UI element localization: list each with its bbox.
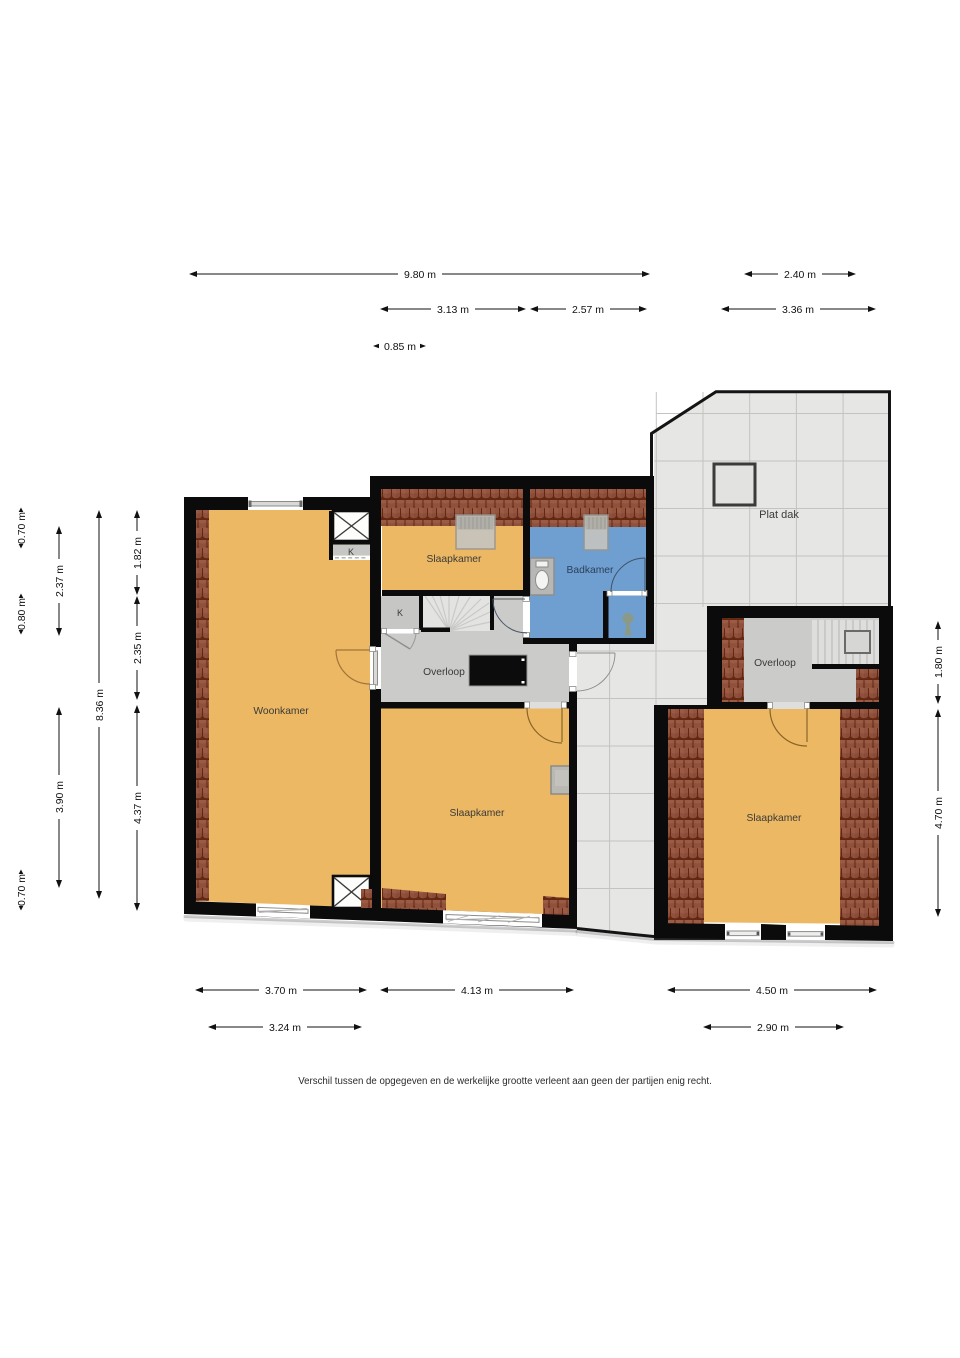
svg-text:Overloop: Overloop xyxy=(754,658,796,669)
svg-text:Woonkamer: Woonkamer xyxy=(253,706,309,717)
svg-text:3.70 m: 3.70 m xyxy=(265,985,297,997)
svg-text:0.70 m: 0.70 m xyxy=(16,512,28,544)
svg-text:0.80 m: 0.80 m xyxy=(16,598,28,630)
svg-text:K: K xyxy=(397,608,403,618)
svg-text:0.85 m: 0.85 m xyxy=(384,341,416,353)
svg-text:3.13 m: 3.13 m xyxy=(437,304,469,316)
svg-text:Badkamer: Badkamer xyxy=(567,565,615,576)
svg-text:Plat dak: Plat dak xyxy=(759,509,799,521)
svg-text:4.50 m: 4.50 m xyxy=(756,985,788,997)
svg-text:Slaapkamer: Slaapkamer xyxy=(450,808,506,819)
svg-text:Overloop: Overloop xyxy=(423,667,465,678)
svg-text:2.37 m: 2.37 m xyxy=(54,565,66,597)
svg-text:1.80 m: 1.80 m xyxy=(933,646,945,678)
svg-text:4.37 m: 4.37 m xyxy=(132,792,144,824)
svg-text:K: K xyxy=(348,547,354,557)
svg-text:2.90 m: 2.90 m xyxy=(757,1022,789,1034)
svg-text:3.90 m: 3.90 m xyxy=(54,781,66,813)
svg-text:8.36 m: 8.36 m xyxy=(94,689,106,721)
svg-text:2.57 m: 2.57 m xyxy=(572,304,604,316)
svg-text:0.70 m: 0.70 m xyxy=(16,874,28,906)
svg-text:3.24 m: 3.24 m xyxy=(269,1022,301,1034)
svg-text:Slaapkamer: Slaapkamer xyxy=(747,813,803,824)
svg-text:2.40 m: 2.40 m xyxy=(784,269,816,281)
svg-text:3.36 m: 3.36 m xyxy=(782,304,814,316)
svg-text:9.80 m: 9.80 m xyxy=(404,269,436,281)
svg-text:4.13 m: 4.13 m xyxy=(461,985,493,997)
svg-text:2.35 m: 2.35 m xyxy=(132,632,144,664)
svg-text:1.82 m: 1.82 m xyxy=(132,537,144,569)
svg-text:4.70 m: 4.70 m xyxy=(933,797,945,829)
svg-text:Slaapkamer: Slaapkamer xyxy=(427,554,483,565)
svg-text:Verschil tussen de opgegeven e: Verschil tussen de opgegeven en de werke… xyxy=(298,1076,712,1087)
